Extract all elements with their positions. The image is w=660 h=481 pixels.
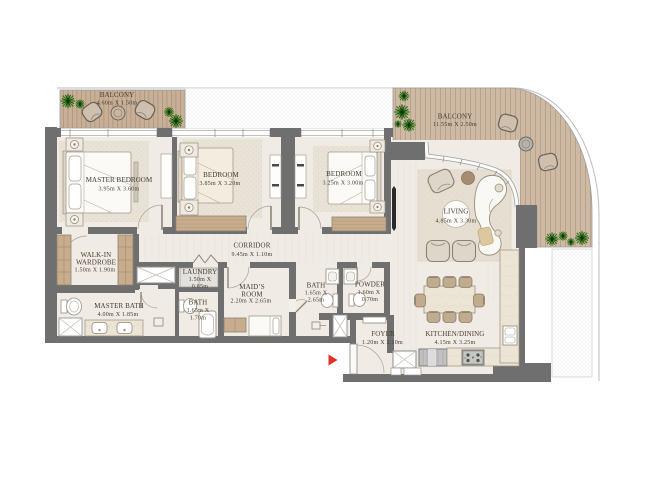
svg-text:4.60m X 1.50m: 4.60m X 1.50m: [97, 101, 138, 107]
svg-text:11.55m X 2.50m: 11.55m X 2.50m: [433, 122, 477, 128]
svg-text:LAUNDRY: LAUNDRY: [183, 268, 218, 276]
svg-text:9.45m X 1.10m: 9.45m X 1.10m: [232, 252, 273, 258]
svg-text:0.70m: 0.70m: [362, 297, 379, 303]
svg-text:2.20m X 2.65m: 2.20m X 2.65m: [231, 299, 272, 305]
svg-text:2.65m: 2.65m: [308, 298, 325, 304]
svg-text:4.15m X 3.25m: 4.15m X 3.25m: [435, 340, 476, 346]
svg-text:FOYER: FOYER: [371, 330, 395, 338]
svg-text:LIVING: LIVING: [444, 208, 469, 216]
svg-text:4.85m X 3.30m: 4.85m X 3.30m: [436, 219, 477, 225]
svg-text:BEDROOM: BEDROOM: [326, 170, 362, 178]
svg-text:BEDROOM: BEDROOM: [203, 171, 239, 179]
svg-text:MASTER BEDROOM: MASTER BEDROOM: [86, 176, 153, 184]
svg-text:1.60m X: 1.60m X: [358, 290, 381, 296]
svg-text:MASTER BATH: MASTER BATH: [94, 302, 144, 310]
svg-text:BALCONY: BALCONY: [100, 91, 135, 99]
svg-text:3.95m X 3.60m: 3.95m X 3.60m: [99, 187, 140, 193]
svg-text:ROOM: ROOM: [241, 291, 263, 299]
svg-text:POWDER: POWDER: [355, 281, 385, 289]
svg-text:BATH: BATH: [189, 299, 208, 307]
svg-text:WARDROBE: WARDROBE: [76, 259, 116, 267]
svg-text:1.65m X: 1.65m X: [187, 308, 210, 314]
svg-text:1.70m: 1.70m: [190, 316, 207, 322]
svg-text:3.85m X 3.20m: 3.85m X 3.20m: [200, 181, 241, 187]
svg-text:BATH: BATH: [307, 282, 326, 290]
svg-text:1.20m X 2.10m: 1.20m X 2.10m: [362, 340, 403, 346]
svg-text:KITCHEN/DINING: KITCHEN/DINING: [426, 330, 485, 338]
svg-text:4.00m X 1.85m: 4.00m X 1.85m: [98, 312, 139, 318]
svg-text:CORRIDOR: CORRIDOR: [234, 242, 271, 250]
svg-text:0.85m: 0.85m: [192, 284, 209, 290]
svg-text:1.50m X: 1.50m X: [189, 277, 212, 283]
svg-text:1.65m X: 1.65m X: [305, 291, 328, 297]
svg-text:3.25m X 3.00m: 3.25m X 3.00m: [323, 181, 364, 187]
svg-text:1.50m X 1.90m: 1.50m X 1.90m: [75, 268, 116, 274]
svg-text:BALCONY: BALCONY: [438, 113, 473, 121]
